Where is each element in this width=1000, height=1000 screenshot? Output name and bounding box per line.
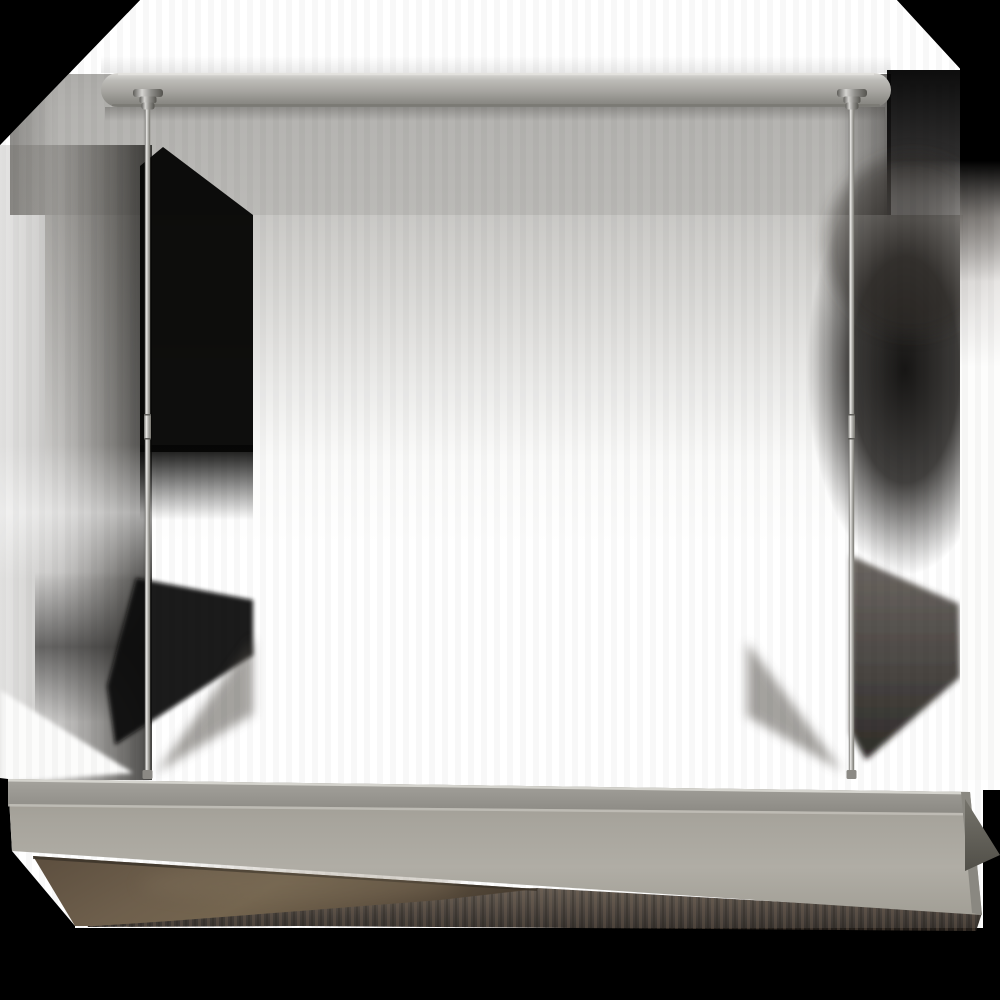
rod-coupler-right-seam: [848, 438, 855, 440]
ceiling-canopy: [101, 73, 891, 110]
rod-base-connector-left: [143, 770, 153, 779]
rod-coupler-left-seam: [144, 438, 151, 440]
shade-right-gap: [983, 790, 1000, 935]
ceiling-canopy-bar: [101, 73, 891, 107]
hub-knob: [846, 103, 859, 110]
rod-base-connector-right: [847, 770, 857, 779]
rod-coupler-right-seam: [848, 414, 855, 416]
rod-coupler-left-seam: [144, 414, 151, 416]
below-shade-black: [0, 928, 1000, 1000]
canopy-bottom-edge: [112, 104, 880, 107]
rod-coupler-left: [144, 415, 151, 439]
suspension-rod-right: [849, 105, 854, 778]
rod-coupler-right: [848, 415, 855, 439]
hub-disc: [133, 89, 163, 97]
hub-neck: [140, 97, 157, 104]
hub-knob: [142, 103, 155, 110]
chandelier-product-photo: [0, 0, 1000, 1000]
product-image: [0, 0, 1000, 1000]
canopy-top-highlight: [118, 73, 874, 75]
shade: [0, 778, 1000, 1000]
suspension-rod-left: [145, 105, 150, 778]
hub-neck: [844, 97, 861, 104]
hub-disc: [837, 89, 867, 97]
